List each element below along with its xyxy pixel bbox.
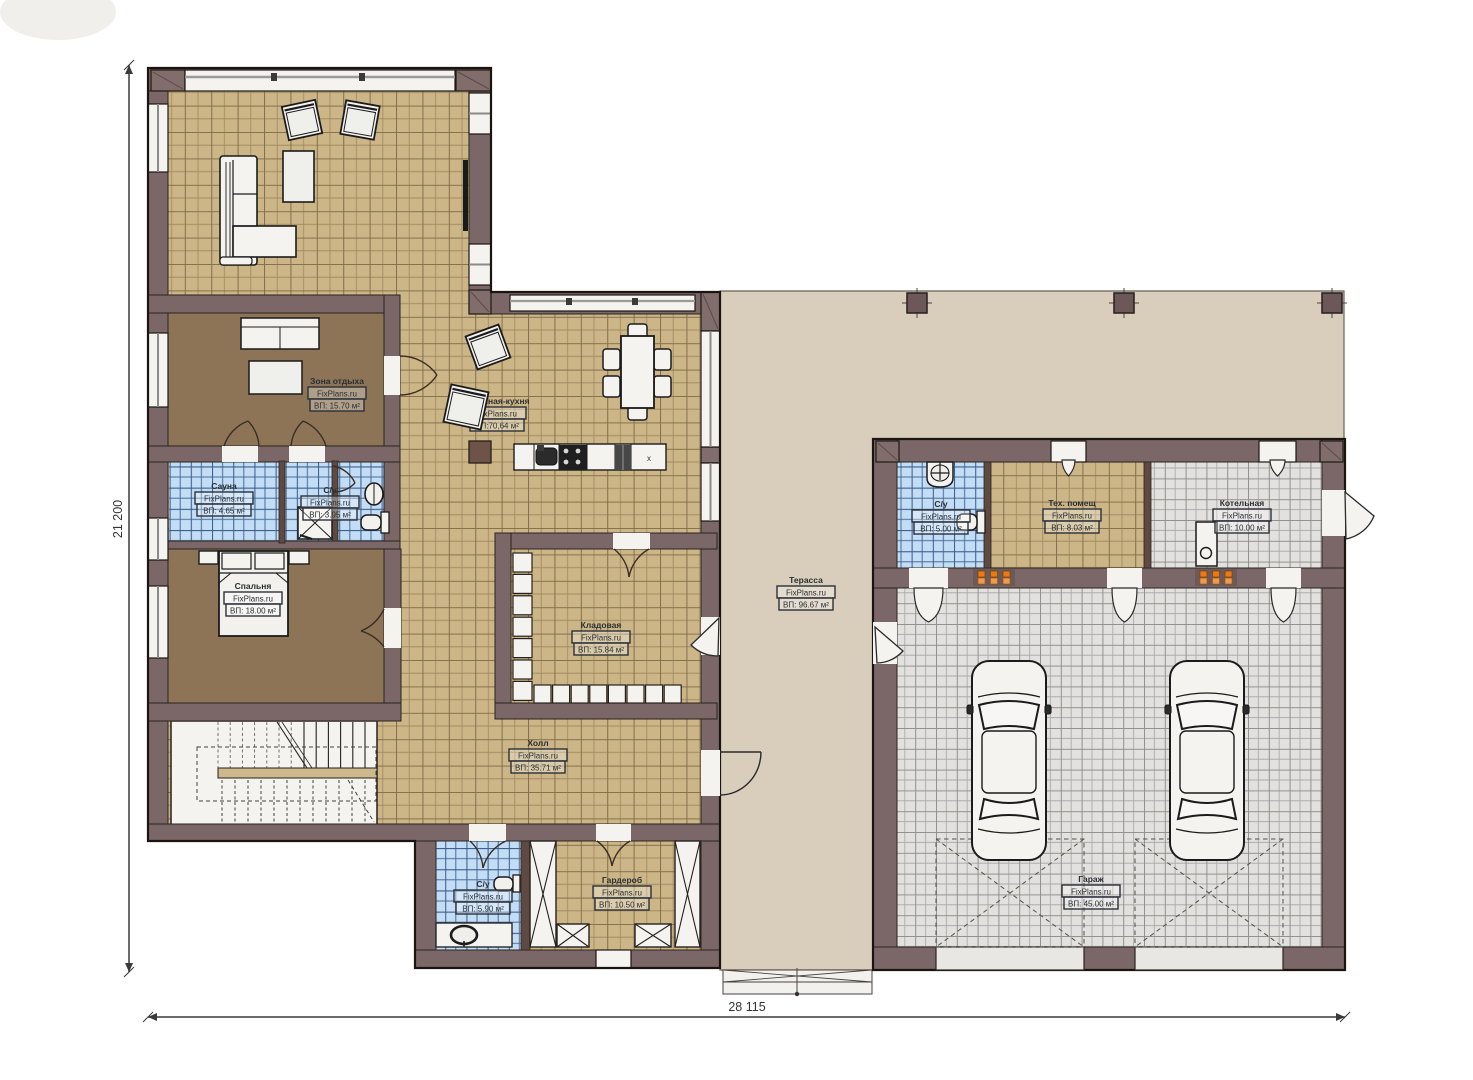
svg-text:FixPlans.ru: FixPlans.ru — [1052, 512, 1092, 521]
svg-text:С/у: С/у — [476, 879, 490, 889]
svg-text:Котельная: Котельная — [1220, 498, 1265, 508]
svg-text:С/у: С/у — [323, 485, 337, 495]
svg-text:ВП: 8.03 м²: ВП: 8.03 м² — [1051, 524, 1093, 533]
svg-text:Гардероб: Гардероб — [602, 875, 642, 885]
svg-text:ВП: 5.00 м²: ВП: 5.00 м² — [920, 525, 962, 534]
svg-text:ВП: 5.90 м²: ВП: 5.90 м² — [462, 905, 504, 914]
svg-text:ВП: 15.84 м²: ВП: 15.84 м² — [578, 646, 624, 655]
svg-text:ВП: 4.65 м²: ВП: 4.65 м² — [203, 507, 245, 516]
svg-text:Терасса: Терасса — [789, 575, 823, 585]
svg-text:FixPlans.ru: FixPlans.ru — [204, 495, 244, 504]
svg-text:FixPlans.ru: FixPlans.ru — [518, 752, 558, 761]
svg-text:С/у: С/у — [934, 499, 948, 509]
svg-text:Холл: Холл — [527, 738, 548, 748]
svg-text:Гараж: Гараж — [1078, 874, 1104, 884]
svg-text:ВП: 18.00 м²: ВП: 18.00 м² — [230, 607, 276, 616]
svg-text:21 200: 21 200 — [111, 500, 125, 538]
svg-text:FixPlans.ru: FixPlans.ru — [921, 513, 961, 522]
svg-text:Зона отдыха: Зона отдыха — [310, 376, 364, 386]
svg-text:ВП: 10.50 м²: ВП: 10.50 м² — [599, 901, 645, 910]
svg-text:Спальня: Спальня — [235, 581, 272, 591]
svg-text:FixPlans.ru: FixPlans.ru — [786, 589, 826, 598]
svg-text:ВП: 15.70 м²: ВП: 15.70 м² — [314, 402, 360, 411]
svg-text:Тех. помещ: Тех. помещ — [1048, 498, 1096, 508]
svg-text:Сауна: Сауна — [211, 481, 237, 491]
svg-text:ВП: 45.00 м²: ВП: 45.00 м² — [1068, 900, 1114, 909]
svg-text:FixPlans.ru: FixPlans.ru — [602, 889, 642, 898]
svg-text:ВП: 35.71 м²: ВП: 35.71 м² — [515, 764, 561, 773]
svg-text:Кладовая: Кладовая — [581, 620, 622, 630]
svg-text:FixPlans.ru: FixPlans.ru — [233, 595, 273, 604]
svg-text:FixPlans.ru: FixPlans.ru — [1071, 888, 1111, 897]
svg-text:FixPlans.ru: FixPlans.ru — [463, 893, 503, 902]
svg-text:FixPlans.ru: FixPlans.ru — [310, 499, 350, 508]
svg-text:ВП: 10.00 м²: ВП: 10.00 м² — [1219, 524, 1265, 533]
svg-text:x: x — [647, 454, 651, 463]
svg-text:ВП: 3.95 м²: ВП: 3.95 м² — [309, 511, 351, 520]
svg-text:ВП: 96.67 м²: ВП: 96.67 м² — [783, 601, 829, 610]
svg-text:FixPlans.ru: FixPlans.ru — [317, 390, 357, 399]
svg-text:28 115: 28 115 — [728, 1000, 765, 1014]
svg-text:FixPlans.ru: FixPlans.ru — [581, 634, 621, 643]
svg-text:FixPlans.ru: FixPlans.ru — [1222, 512, 1262, 521]
